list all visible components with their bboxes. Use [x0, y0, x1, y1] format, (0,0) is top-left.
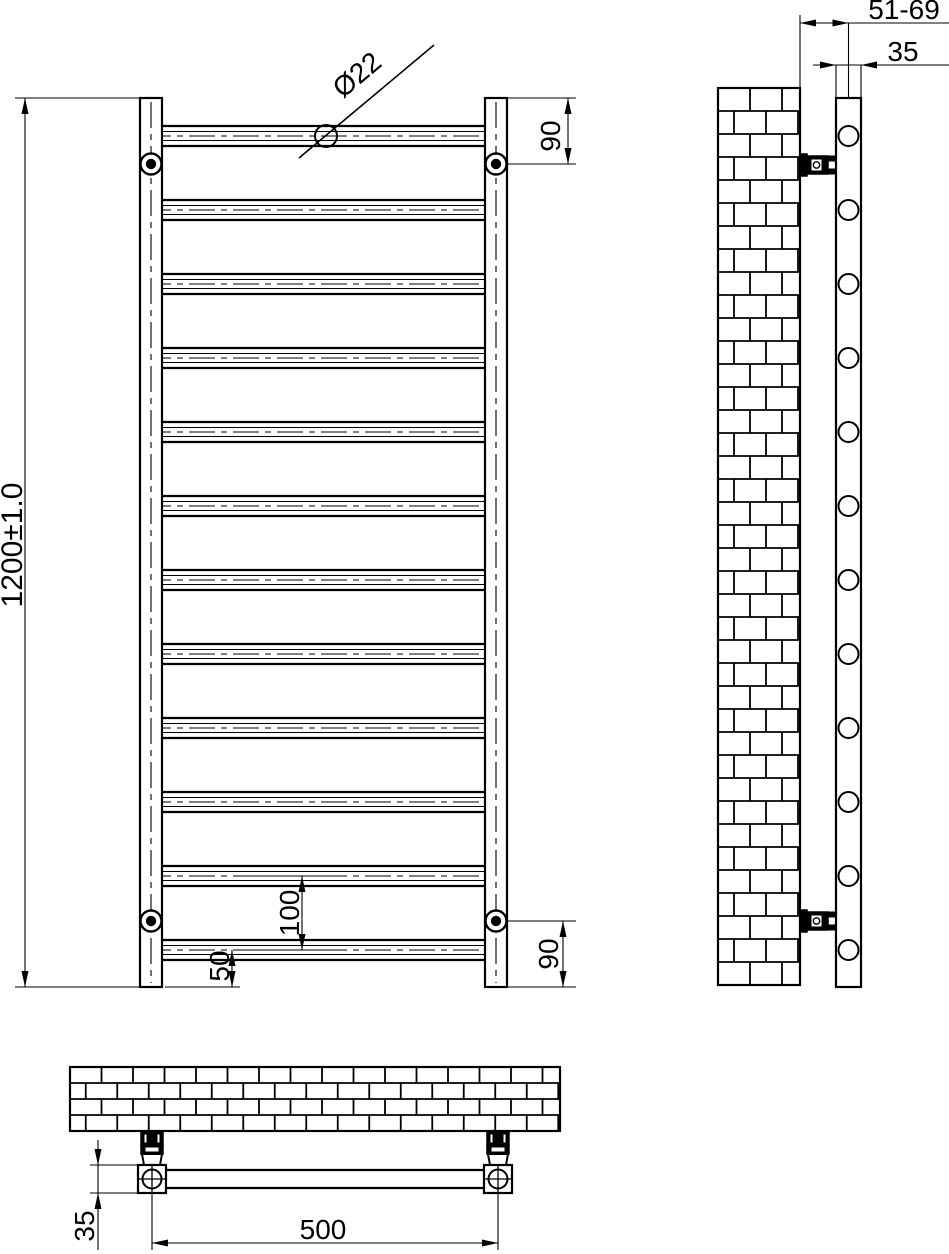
dim-arrow	[800, 20, 816, 27]
dim-rail-depth-plan-label: 35	[69, 1210, 100, 1241]
plan-wall-bracket	[487, 1132, 509, 1165]
dim-rail-depth-side-label: 35	[887, 36, 918, 67]
dim-arrow	[560, 921, 567, 937]
dim-arrow	[820, 62, 836, 69]
side-rail	[836, 98, 861, 987]
dim-arrow	[299, 876, 306, 892]
dim-tube-spacing-label: 100	[274, 890, 305, 937]
front-rails	[140, 98, 507, 987]
dim-arrow	[861, 62, 877, 69]
side-dimensions	[800, 15, 949, 98]
side-view	[718, 15, 949, 987]
technical-drawing-canvas: 1200±1.0 Ø22 90 90 100 50 51-69 35 500 3…	[0, 0, 949, 1254]
dim-rail-centres-label: 500	[300, 1214, 347, 1245]
towel-radiator-drawing: 1200±1.0 Ø22 90 90 100 50 51-69 35 500 3…	[0, 0, 949, 1254]
plan-wall-bracket	[141, 1132, 163, 1165]
front-view	[15, 45, 576, 987]
mounting-bracket-marker	[141, 154, 162, 175]
dim-arrow	[560, 971, 567, 987]
front-tubes	[145, 126, 502, 960]
dim-arrow	[152, 1240, 168, 1247]
dim-bottom-bracket-offset-label: 90	[533, 938, 564, 969]
mounting-bracket-marker	[141, 911, 162, 932]
dim-top-bracket-offset-label: 90	[535, 120, 566, 151]
dim-arrow	[95, 1193, 102, 1209]
dim-arrow	[22, 98, 29, 114]
side-wall-bracket	[801, 910, 836, 932]
mounting-bracket-marker	[486, 154, 507, 175]
side-wall-bracket	[801, 154, 836, 176]
dim-arrow	[482, 1240, 498, 1247]
dim-arrow	[565, 98, 572, 114]
dim-tube-diameter-label: Ø22	[327, 46, 387, 104]
plan-rail	[138, 1165, 512, 1193]
plan-wall-bricks	[70, 1067, 560, 1131]
dim-arrow	[833, 20, 849, 27]
dim-arrow	[22, 971, 29, 987]
side-wall-bricks	[718, 88, 800, 985]
mounting-bracket-marker	[486, 911, 507, 932]
dim-last-tube-to-end-label: 50	[204, 950, 235, 981]
dim-wall-to-rail-label: 51-69	[868, 0, 940, 25]
dim-arrow	[95, 1149, 102, 1165]
dim-overall-height-label: 1200±1.0	[0, 483, 29, 608]
